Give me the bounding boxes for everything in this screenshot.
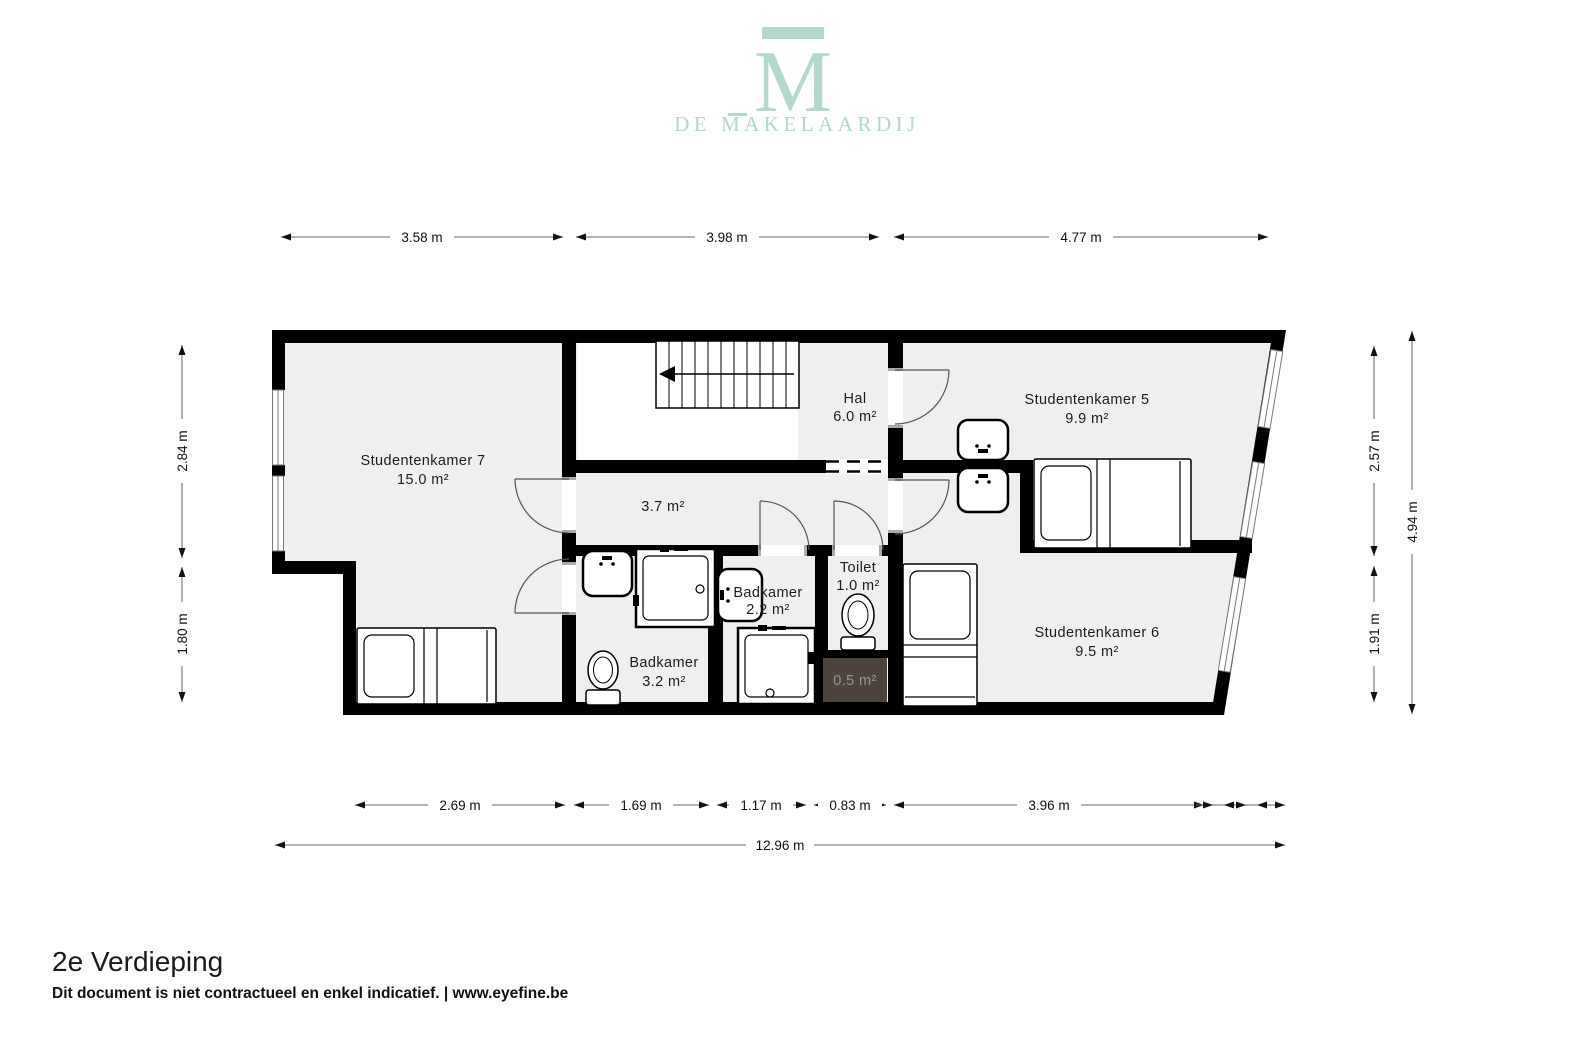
brand-name: DE MAKELAARDIJ — [674, 112, 920, 136]
wall-toilet-bottom — [815, 650, 903, 658]
bed-kamer5 — [1034, 459, 1191, 548]
wall-corridor-bottom-c — [882, 545, 903, 556]
logo-macron — [728, 113, 747, 116]
dim-left-1: 2.84 m — [173, 345, 191, 558]
svg-text:12.96 m: 12.96 m — [756, 838, 805, 853]
window-left-2 — [273, 476, 284, 551]
dim-left-2: 1.80 m — [173, 567, 191, 702]
room-label-shaft: 0.5 m² — [833, 673, 877, 689]
wall-stair-bottom — [562, 460, 826, 473]
svg-text:3.58 m: 3.58 m — [401, 230, 442, 245]
page-title: 2e Verdieping — [52, 946, 223, 977]
svg-text:1.0 m²: 1.0 m² — [836, 578, 880, 594]
svg-text:0.5 m²: 0.5 m² — [833, 673, 877, 689]
svg-text:Badkamer: Badkamer — [629, 655, 698, 671]
svg-text:9.9 m²: 9.9 m² — [1065, 411, 1109, 427]
dim-bottom-2: 1.69 m — [574, 796, 709, 813]
wall-step-vertical — [343, 561, 356, 715]
toilet-wc — [841, 594, 875, 650]
dim-total-width: 12.96 m — [275, 836, 1285, 853]
dimensions-right: 2.57 m 1.91 m 4.94 m — [1365, 331, 1421, 714]
shower-badkamer32 — [633, 546, 715, 627]
room-label-corridor: 3.7 m² — [641, 499, 685, 515]
wall-main-c — [888, 533, 903, 713]
bed-kamer7 — [357, 628, 496, 704]
svg-text:3.7 m²: 3.7 m² — [641, 499, 685, 515]
floorplan-page: M DE MAKELAARDIJ 3.58 m 3.98 m 4.77 m — [0, 0, 1578, 1050]
svg-text:Studentenkamer 6: Studentenkamer 6 — [1035, 625, 1160, 641]
dim-right-total: 4.94 m — [1403, 331, 1421, 714]
svg-text:6.0 m²: 6.0 m² — [833, 409, 877, 425]
svg-text:Hal: Hal — [844, 391, 867, 407]
window-left-1 — [273, 390, 284, 465]
wall-toilet-divider — [815, 545, 828, 658]
dim-right-1: 2.57 m — [1365, 346, 1383, 556]
svg-text:1.17 m: 1.17 m — [740, 798, 781, 813]
svg-text:3.2 m²: 3.2 m² — [642, 674, 686, 690]
svg-text:Studentenkamer 5: Studentenkamer 5 — [1025, 392, 1150, 408]
svg-text:2.69 m: 2.69 m — [439, 798, 480, 813]
wall-main-a — [888, 330, 903, 368]
dim-right-2: 1.91 m — [1365, 566, 1383, 702]
svg-text:4.94 m: 4.94 m — [1405, 501, 1420, 542]
svg-text:Badkamer: Badkamer — [733, 585, 802, 601]
svg-text:2.2 m²: 2.2 m² — [746, 602, 790, 618]
dim-bottom-3: 1.17 m — [717, 796, 806, 813]
svg-text:15.0 m²: 15.0 m² — [397, 472, 449, 488]
wall-room7-divider-a — [562, 330, 576, 477]
dimensions-left: 2.84 m 1.80 m — [173, 345, 191, 702]
svg-text:2.84 m: 2.84 m — [175, 430, 190, 471]
dim-top-2: 3.98 m — [576, 228, 879, 245]
toilet-badkamer32 — [586, 651, 620, 705]
wall-left-mullion — [272, 465, 285, 476]
dim-bottom-1: 2.69 m — [355, 796, 565, 813]
dim-bottom-4: 0.83 m — [814, 796, 886, 813]
svg-text:3.98 m: 3.98 m — [706, 230, 747, 245]
dimensions-bottom: 2.69 m 1.69 m 1.17 m 0.83 m 3.96 m — [275, 796, 1285, 853]
dim-bottom-5: 3.96 m — [894, 796, 1204, 813]
dim-top-3: 4.77 m — [894, 228, 1268, 245]
floorplan-canvas: M DE MAKELAARDIJ 3.58 m 3.98 m 4.77 m — [0, 0, 1578, 1050]
svg-text:3.96 m: 3.96 m — [1028, 798, 1069, 813]
bed-kamer6 — [903, 564, 977, 706]
svg-text:1.91 m: 1.91 m — [1367, 613, 1382, 654]
wall-kamer5-vertical — [1020, 460, 1033, 553]
opening-hal-dashed — [826, 459, 888, 474]
dimensions-top: 3.58 m 3.98 m 4.77 m — [281, 228, 1268, 245]
staircase — [656, 341, 799, 408]
svg-text:9.5 m²: 9.5 m² — [1075, 644, 1119, 660]
brand-logo: M DE MAKELAARDIJ — [674, 27, 920, 136]
svg-text:1.80 m: 1.80 m — [175, 613, 190, 654]
washbasin-kamer5 — [958, 420, 1008, 460]
svg-text:Toilet: Toilet — [840, 560, 876, 576]
svg-text:0.83 m: 0.83 m — [829, 798, 870, 813]
svg-text:4.77 m: 4.77 m — [1060, 230, 1101, 245]
footer: 2e Verdieping Dit document is niet contr… — [52, 946, 569, 1002]
svg-text:Studentenkamer 7: Studentenkamer 7 — [361, 453, 486, 469]
shower-badkamer22 — [738, 625, 815, 704]
sink-badkamer32 — [583, 551, 632, 596]
svg-text:1.69 m: 1.69 m — [620, 798, 661, 813]
wall-room7-divider-c — [562, 615, 576, 707]
disclaimer-text: Dit document is niet contractueel en enk… — [52, 985, 569, 1002]
wall-left-upper — [272, 330, 285, 390]
svg-text:2.57 m: 2.57 m — [1367, 430, 1382, 471]
dim-top-1: 3.58 m — [281, 228, 563, 245]
wall-main-b — [888, 428, 903, 478]
washbasin-kamer6 — [958, 468, 1008, 512]
dim-bottom-small-ticks — [1196, 802, 1285, 809]
